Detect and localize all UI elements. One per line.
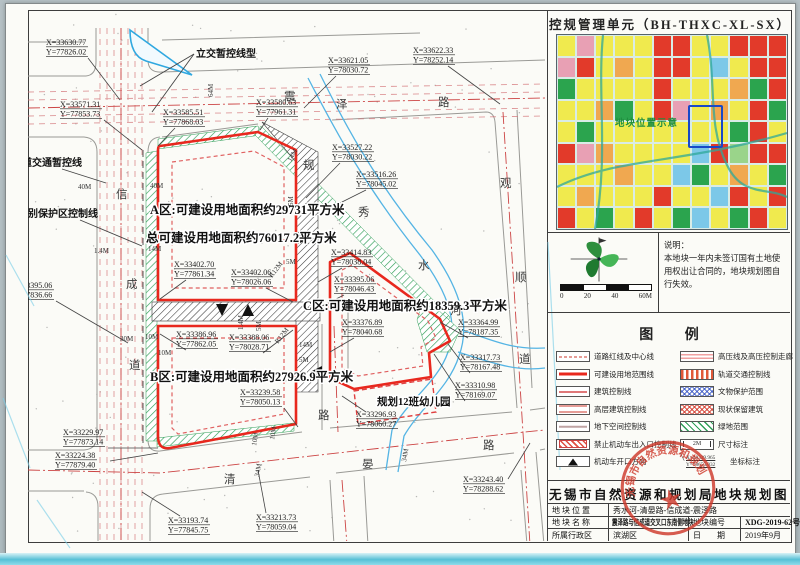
control-unit-title: 控规管理单元（BH-THXC-XL-SX） bbox=[549, 14, 789, 33]
dimension-label: 5M bbox=[255, 321, 263, 332]
svg-text:X=33402.70: X=33402.70 bbox=[174, 260, 214, 269]
dimension-label: 34M bbox=[400, 447, 410, 462]
svg-text:Y=77826.02: Y=77826.02 bbox=[46, 48, 86, 57]
svg-text:Y=78040.68: Y=78040.68 bbox=[342, 328, 382, 337]
svg-text:Y=77961.31: Y=77961.31 bbox=[256, 108, 296, 117]
scale-bar-ticks: 0204060M bbox=[560, 292, 652, 300]
road-name-char: 路 bbox=[318, 408, 330, 422]
legend-item-label: 可建设用地范围线 bbox=[594, 369, 654, 380]
plot-plan-map: X=33630.77Y=77826.02X=33571.31Y=77853.73… bbox=[28, 10, 547, 541]
survey-dot bbox=[44, 94, 45, 95]
plot-number-value: XDG-2019-62号 bbox=[742, 517, 789, 528]
survey-dot bbox=[202, 189, 203, 190]
svg-text:X=33395.06: X=33395.06 bbox=[28, 281, 52, 290]
area-label: 总可建设用地面积约76017.2平方米 bbox=[146, 230, 337, 245]
date-field-label: 日 期 bbox=[690, 529, 739, 541]
area-label: 规划12班幼儿园 bbox=[377, 395, 451, 408]
area-label: B区:可建设用地面积约27926.9平方米 bbox=[150, 369, 354, 384]
svg-text:X=33243.40: X=33243.40 bbox=[463, 475, 503, 484]
svg-text:Y=77853.73: Y=77853.73 bbox=[60, 110, 100, 119]
road-name-char: 秀 bbox=[358, 206, 370, 219]
survey-dot bbox=[192, 25, 193, 26]
scale-bar-segments bbox=[560, 284, 652, 291]
survey-dot bbox=[374, 160, 375, 161]
survey-dot bbox=[519, 112, 520, 113]
area-label: C区:可建设用地面积约18359.3平方米 bbox=[303, 298, 507, 313]
coordinate-annotation: X=33243.40Y=78288.62 bbox=[463, 443, 530, 494]
road-name-char: 规 bbox=[303, 158, 315, 172]
dimension-label: 1.4M bbox=[237, 314, 245, 330]
legend-item-label: 禁止机动车出入口控制线 bbox=[594, 439, 677, 450]
legend-item: 高压线及高压控制走廊 bbox=[680, 348, 788, 366]
interchange-control-shape bbox=[130, 30, 192, 75]
dimension-label: 5M bbox=[299, 356, 310, 364]
svg-text:Y=78026.06: Y=78026.06 bbox=[231, 278, 271, 287]
svg-text:Y=78028.71: Y=78028.71 bbox=[229, 343, 269, 352]
legend-item: 现状保留建筑 bbox=[680, 401, 788, 419]
panel-divider bbox=[547, 10, 548, 541]
survey-dot bbox=[461, 89, 462, 90]
survey-dot bbox=[211, 196, 212, 197]
coordinate-annotation: X=33317.73Y=78167.48 bbox=[448, 344, 502, 373]
svg-text:Y=78252.14: Y=78252.14 bbox=[413, 56, 453, 65]
legend-swatch-rail-icon bbox=[680, 369, 714, 380]
survey-dot bbox=[504, 462, 505, 463]
survey-dot bbox=[379, 351, 380, 352]
svg-text:Y=78046.43: Y=78046.43 bbox=[334, 285, 374, 294]
svg-text:Y=77879.40: Y=77879.40 bbox=[55, 461, 95, 470]
plot-location-label: 地块位置示意 bbox=[615, 115, 678, 129]
survey-dot bbox=[237, 70, 238, 71]
survey-dot bbox=[90, 141, 91, 142]
survey-dot bbox=[453, 401, 454, 402]
scale-tick: 40 bbox=[611, 292, 618, 300]
survey-dot bbox=[469, 519, 470, 520]
dimension-label: 40M bbox=[150, 182, 164, 190]
legend-item: 绿地范围 bbox=[680, 418, 788, 436]
svg-text:Y=78030.72: Y=78030.72 bbox=[328, 66, 368, 75]
svg-text:X=33630.77: X=33630.77 bbox=[46, 38, 86, 47]
survey-dot bbox=[339, 223, 340, 224]
callout-label: 轨道交通暂控线 bbox=[28, 156, 106, 183]
legend-item-label: 建筑控制线 bbox=[594, 386, 632, 397]
survey-dot bbox=[71, 473, 72, 474]
callout-label: 特别保护区控制线 bbox=[28, 207, 142, 246]
svg-text:轨道交通暂控线: 轨道交通暂控线 bbox=[28, 156, 82, 169]
svg-text:Y=77868.03: Y=77868.03 bbox=[163, 118, 203, 127]
survey-dot bbox=[416, 496, 417, 497]
legend-item-label: 文物保护范围 bbox=[718, 386, 763, 397]
svg-text:Y=77836.66: Y=77836.66 bbox=[28, 291, 52, 300]
survey-dot bbox=[230, 30, 231, 31]
survey-dot bbox=[501, 337, 502, 338]
svg-text:X=33213.73: X=33213.73 bbox=[256, 513, 296, 522]
survey-dot bbox=[76, 87, 77, 88]
dimension-label: 34M bbox=[253, 462, 263, 477]
survey-dot bbox=[264, 469, 265, 470]
svg-text:X=33388.06: X=33388.06 bbox=[229, 333, 269, 342]
survey-dot bbox=[64, 199, 65, 200]
date-value: 2019年9月 bbox=[742, 529, 789, 541]
svg-text:X=33622.33: X=33622.33 bbox=[413, 46, 453, 55]
legend-swatch-highrise-icon bbox=[556, 404, 590, 415]
legend-swatch-buildable-icon bbox=[556, 369, 590, 380]
legend-swatch-building-icon bbox=[556, 386, 590, 397]
dimension-label: 30M bbox=[120, 335, 134, 343]
svg-text:Y=78050.13: Y=78050.13 bbox=[240, 398, 280, 407]
legend-item-label: 坐标标注 bbox=[730, 456, 760, 467]
survey-dot bbox=[410, 82, 411, 83]
svg-text:Y=78059.04: Y=78059.04 bbox=[256, 523, 296, 532]
survey-dot bbox=[355, 446, 356, 447]
coordinate-annotation: X=33571.31Y=77853.73 bbox=[60, 100, 142, 150]
svg-text:Y=78288.62: Y=78288.62 bbox=[463, 485, 503, 494]
location-minimap: 地块位置示意 bbox=[556, 34, 788, 230]
plot-location-value: 秀水河-清晏路-信成道-震泽路 bbox=[610, 504, 788, 516]
svg-text:Y=78167.48: Y=78167.48 bbox=[460, 363, 500, 372]
legend-title: 图 例 bbox=[549, 324, 789, 344]
survey-dot bbox=[56, 229, 57, 230]
legend-item: 机动车开口方向 bbox=[556, 453, 674, 471]
survey-dot bbox=[176, 421, 177, 422]
legend-item-label: 现状保留建筑 bbox=[718, 404, 763, 415]
svg-text:Y=77873.14: Y=77873.14 bbox=[63, 438, 103, 447]
svg-text:Y=78038.04: Y=78038.04 bbox=[331, 258, 371, 267]
survey-dot bbox=[367, 53, 368, 54]
legend-item: 禁止机动车出入口控制线 bbox=[556, 436, 674, 454]
svg-text:X=33376.89: X=33376.89 bbox=[342, 318, 382, 327]
divider-2 bbox=[547, 312, 790, 313]
survey-dot bbox=[110, 417, 111, 418]
legend-item-label: 机动车开口方向 bbox=[594, 456, 647, 467]
svg-text:X=33317.73: X=33317.73 bbox=[460, 353, 500, 362]
dimension-label: 10M bbox=[250, 431, 260, 446]
coordinate-annotation: X=33229.97Y=77873.14 bbox=[63, 428, 158, 448]
survey-dot bbox=[287, 245, 288, 246]
legend-swatch-relic-icon bbox=[680, 386, 714, 397]
survey-dot bbox=[77, 530, 78, 531]
svg-text:X=33571.31: X=33571.31 bbox=[60, 100, 100, 109]
survey-dot bbox=[101, 130, 102, 131]
survey-dot bbox=[62, 400, 63, 401]
legend-swatch-green-icon bbox=[680, 421, 714, 432]
plot-number-field-label: 地块编号 bbox=[690, 517, 739, 528]
road-name-char: 震 bbox=[284, 90, 296, 103]
survey-dot bbox=[465, 28, 466, 29]
survey-dot bbox=[490, 68, 491, 69]
road-name-char: 晏 bbox=[362, 458, 374, 471]
survey-dot bbox=[307, 486, 308, 487]
legend-item: 可建设用地范围线 bbox=[556, 366, 674, 384]
road-name-char: 路 bbox=[483, 438, 495, 452]
road-name-char: 成 bbox=[126, 278, 138, 291]
divider-compass-note bbox=[658, 232, 659, 312]
survey-dot bbox=[35, 201, 36, 202]
road-name-char: 观 bbox=[500, 177, 512, 190]
svg-text:Y=78030.22: Y=78030.22 bbox=[332, 153, 372, 162]
survey-dot bbox=[126, 172, 127, 173]
svg-text:X=33621.05: X=33621.05 bbox=[328, 56, 368, 65]
survey-dot bbox=[187, 487, 188, 488]
legend-item: 轨道交通控制线 bbox=[680, 366, 788, 384]
svg-text:X=33414.83: X=33414.83 bbox=[331, 248, 371, 257]
survey-dot bbox=[305, 447, 306, 448]
dimension-label: 1.4M bbox=[94, 247, 110, 255]
survey-dot bbox=[169, 414, 170, 415]
road-name-char: 泽 bbox=[336, 98, 348, 111]
legend-swatch-hv-icon bbox=[680, 351, 714, 362]
svg-text:X=33386.96: X=33386.96 bbox=[176, 330, 216, 339]
road-name-char: 清 bbox=[224, 473, 236, 486]
area-label: A区:可建设用地面积约29731平方米 bbox=[150, 202, 345, 217]
survey-dot bbox=[374, 96, 375, 97]
survey-dot bbox=[256, 58, 257, 59]
legend-item: 道路红线及中心线 bbox=[556, 348, 674, 366]
dimension-label: 10M bbox=[158, 349, 172, 357]
svg-text:Y=77862.05: Y=77862.05 bbox=[176, 340, 216, 349]
survey-dot bbox=[58, 206, 59, 207]
survey-dot bbox=[255, 451, 256, 452]
legend-item: 建筑控制线 bbox=[556, 383, 674, 401]
survey-dot bbox=[261, 60, 262, 61]
svg-text:X=33224.38: X=33224.38 bbox=[55, 451, 95, 460]
survey-dot bbox=[117, 33, 118, 34]
tb-vline3 bbox=[740, 516, 741, 541]
road-name-char: 顺 bbox=[515, 271, 527, 284]
survey-dot bbox=[413, 348, 414, 349]
legend-item-label: 高压线及高压控制走廊 bbox=[718, 351, 793, 362]
survey-dot bbox=[196, 200, 197, 201]
svg-text:立交暂控线型: 立交暂控线型 bbox=[196, 47, 256, 60]
dimension-label: R12M bbox=[267, 260, 285, 280]
survey-dot bbox=[115, 14, 116, 15]
plot-location-outline bbox=[688, 105, 723, 148]
survey-dot bbox=[256, 53, 257, 54]
scale-bar: 0204060M bbox=[560, 284, 652, 300]
survey-dot bbox=[332, 228, 333, 229]
survey-dot bbox=[488, 151, 489, 152]
note-text: 说明： 本地块一年内未签订国有土地使用权出让合同的，地块规划图自行失效。 bbox=[664, 240, 784, 291]
survey-dot bbox=[172, 197, 173, 198]
dimension-label: 5M bbox=[287, 196, 295, 207]
survey-dot bbox=[226, 507, 227, 508]
north-compass-icon bbox=[549, 234, 649, 284]
coordinate-annotation: X=33376.89Y=78040.68 bbox=[330, 318, 384, 352]
survey-dot bbox=[224, 495, 225, 496]
survey-dots bbox=[35, 14, 529, 532]
svg-text:X=33527.22: X=33527.22 bbox=[332, 143, 372, 152]
dimension-label: 40M bbox=[78, 183, 92, 191]
dimension-label: R12M bbox=[273, 326, 291, 346]
legend-right-column: 高压线及高压控制走廊轨道交通控制线文物保护范围现状保留建筑绿地范围尺寸标注X=4… bbox=[680, 348, 788, 471]
scale-tick: 60M bbox=[639, 292, 652, 300]
legend-item-label: 尺寸标注 bbox=[718, 439, 748, 450]
coordinate-annotation: X=33622.33Y=78252.14 bbox=[413, 46, 500, 104]
svg-text:X=33296.93: X=33296.93 bbox=[356, 410, 396, 419]
survey-dot bbox=[392, 378, 393, 379]
legend-swatch-noentry-icon bbox=[556, 439, 590, 450]
survey-dot bbox=[46, 327, 47, 328]
svg-text:Y=78045.02: Y=78045.02 bbox=[356, 180, 396, 189]
scale-tick: 0 bbox=[560, 292, 564, 300]
road-name-char: 路 bbox=[438, 95, 450, 109]
svg-text:Y=77845.75: Y=77845.75 bbox=[168, 526, 208, 535]
survey-dot bbox=[441, 228, 442, 229]
survey-dot bbox=[283, 41, 284, 42]
legend-swatch-dim-icon bbox=[680, 439, 714, 450]
svg-text:Y=78169.07: Y=78169.07 bbox=[455, 391, 495, 400]
dimension-label: 14M bbox=[148, 245, 162, 253]
legend: 道路红线及中心线可建设用地范围线建筑控制线高层建筑控制线地下空间控制线禁止机动车… bbox=[556, 348, 788, 471]
legend-swatch-opening-icon bbox=[556, 456, 590, 467]
survey-dot bbox=[397, 347, 398, 348]
svg-text:X=33364.99: X=33364.99 bbox=[458, 318, 498, 327]
legend-item-label: 地下空间控制线 bbox=[594, 421, 647, 432]
legend-item-label: 高层建筑控制线 bbox=[594, 404, 647, 415]
survey-dot bbox=[484, 508, 485, 509]
minimap-rivers bbox=[557, 35, 787, 229]
legend-swatch-underground-icon bbox=[556, 421, 590, 432]
coordinate-annotation: X=33386.96Y=77862.05 bbox=[160, 330, 218, 350]
svg-text:X=33516.26: X=33516.26 bbox=[356, 170, 396, 179]
legend-item: 文物保护范围 bbox=[680, 383, 788, 401]
survey-dot bbox=[455, 106, 456, 107]
scanner-edge-strip bbox=[0, 553, 800, 565]
survey-dot bbox=[72, 497, 73, 498]
survey-dot bbox=[518, 183, 519, 184]
svg-text:X=33585.51: X=33585.51 bbox=[163, 108, 203, 117]
district-field-label: 所属行政区 bbox=[549, 529, 607, 541]
dimension-label: 10M bbox=[268, 425, 278, 440]
survey-dot bbox=[522, 331, 523, 332]
legend-item: X=40339.965Y=78655.032坐标标注 bbox=[680, 453, 788, 471]
tb-vline1 bbox=[608, 503, 609, 541]
note-title: 说明： bbox=[664, 241, 689, 250]
road-name-char: 河 bbox=[450, 304, 462, 317]
svg-text:X=33402.06: X=33402.06 bbox=[231, 268, 271, 277]
road-name-char: 道 bbox=[519, 352, 531, 366]
survey-dot bbox=[483, 230, 484, 231]
survey-dot bbox=[153, 475, 154, 476]
scale-tick: 20 bbox=[584, 292, 591, 300]
note-body: 本地块一年内未签订国有土地使用权出让合同的，地块规划图自行失效。 bbox=[664, 254, 780, 289]
survey-dot bbox=[367, 94, 368, 95]
svg-text:X=33239.58: X=33239.58 bbox=[240, 388, 280, 397]
district-value: 滨湖区 bbox=[610, 529, 686, 541]
dimension-label: 64M bbox=[207, 83, 215, 97]
svg-text:X=33395.06: X=33395.06 bbox=[334, 275, 374, 284]
survey-dot bbox=[337, 220, 338, 221]
road-name-char: 信 bbox=[116, 188, 128, 201]
coordinate-annotation: X=33224.38Y=77879.40 bbox=[55, 451, 158, 470]
survey-dot bbox=[510, 520, 511, 521]
survey-dot bbox=[118, 528, 119, 529]
dimension-label: 14M bbox=[299, 341, 313, 349]
coordinate-annotation: X=33193.74Y=77845.75 bbox=[142, 492, 210, 535]
svg-text:特别保护区控制线: 特别保护区控制线 bbox=[28, 207, 98, 220]
drawing-title: 无锡市自然资源和规划局地块规划图 bbox=[549, 484, 789, 503]
legend-item-label: 轨道交通控制线 bbox=[718, 369, 771, 380]
survey-dot bbox=[200, 28, 201, 29]
divider-1 bbox=[547, 232, 790, 233]
survey-dot bbox=[73, 24, 74, 25]
survey-dot bbox=[93, 483, 94, 484]
svg-text:X=33193.74: X=33193.74 bbox=[168, 516, 208, 525]
legend-item-label: 道路红线及中心线 bbox=[594, 351, 654, 362]
plot-name-field-label: 地块名称 bbox=[549, 517, 607, 528]
legend-item: 尺寸标注 bbox=[680, 436, 788, 454]
road-name-char: 道 bbox=[129, 358, 141, 372]
svg-text:Y=78060.27: Y=78060.27 bbox=[356, 420, 396, 429]
dimension-label: 10M bbox=[145, 333, 159, 341]
titleblock-top bbox=[547, 480, 790, 481]
survey-dot bbox=[125, 357, 126, 358]
survey-dot bbox=[204, 499, 205, 500]
legend-item: 高层建筑控制线 bbox=[556, 401, 674, 419]
survey-dot bbox=[434, 383, 435, 384]
survey-dot bbox=[314, 26, 315, 27]
survey-dot bbox=[418, 354, 419, 355]
legend-swatch-road-icon bbox=[556, 351, 590, 362]
legend-swatch-retained-icon bbox=[680, 404, 714, 415]
svg-text:Y=78187.35: Y=78187.35 bbox=[458, 328, 498, 337]
survey-dot bbox=[36, 408, 37, 409]
svg-text:Y=77861.34: Y=77861.34 bbox=[174, 270, 214, 279]
survey-dot bbox=[167, 513, 168, 514]
coordinate-annotation: X=33395.06Y=77836.66 bbox=[28, 281, 128, 343]
svg-text:X=33310.98: X=33310.98 bbox=[455, 381, 495, 390]
survey-dot bbox=[433, 491, 434, 492]
dimension-label: 5M bbox=[286, 258, 297, 266]
road-name-char: 水 bbox=[418, 259, 430, 272]
legend-item: 地下空间控制线 bbox=[556, 418, 674, 436]
survey-dot bbox=[309, 530, 310, 531]
coordinate-sample-icon: X=40339.965Y=78655.032 bbox=[680, 455, 726, 468]
legend-left-column: 道路红线及中心线可建设用地范围线建筑控制线高层建筑控制线地下空间控制线禁止机动车… bbox=[556, 348, 674, 471]
svg-text:X=33229.97: X=33229.97 bbox=[63, 428, 103, 437]
legend-item-label: 绿地范围 bbox=[718, 421, 748, 432]
plot-name-value: 震泽路与信成道交叉口东南侧地块 bbox=[610, 517, 689, 528]
plot-location-field-label: 地块位置 bbox=[549, 504, 607, 516]
coordinate-annotation: X=33402.70Y=77861.34 bbox=[160, 260, 216, 299]
